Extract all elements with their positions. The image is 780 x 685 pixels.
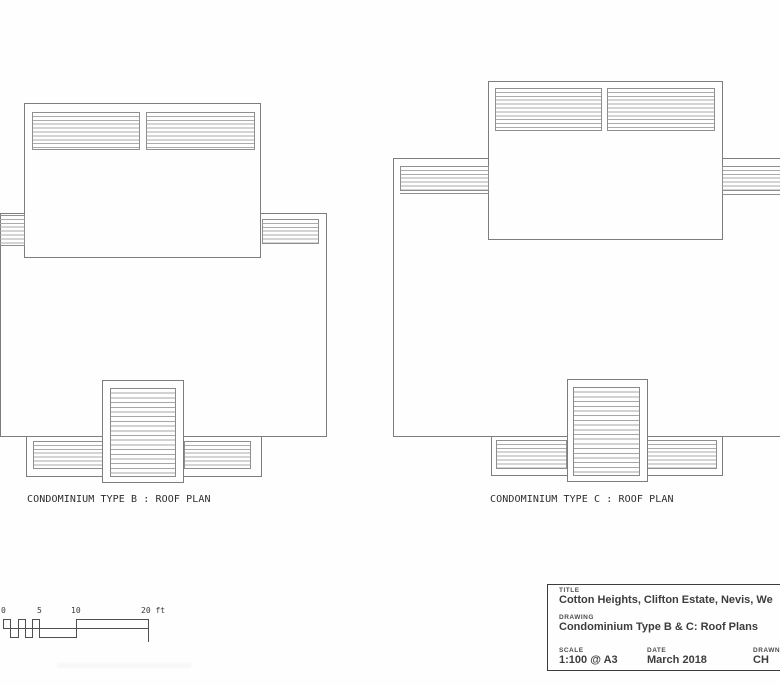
scale-tick-0: 0 — [1, 606, 6, 616]
type-c-skylight-left — [495, 88, 602, 131]
type-c-skylight-right — [607, 88, 715, 131]
scale-segment — [10, 628, 19, 638]
type-b-wing-louvre-right — [262, 219, 319, 244]
type-b-band-louvre-left — [33, 441, 103, 469]
type-b-stair-tower-louvre — [110, 388, 176, 477]
type-c-band-louvre-left — [496, 440, 567, 469]
scale-tick-20: 20 ft — [141, 606, 165, 616]
scale-segment — [25, 628, 33, 638]
scale-segment — [39, 628, 77, 638]
type-b-wing-louvre-left — [0, 215, 25, 246]
drawing-sheet: CONDOMINIUM TYPE B : ROOF PLAN CONDOMINI… — [0, 0, 780, 685]
type-b-band-louvre-right — [184, 441, 251, 469]
type-c-wing-louvre-right — [722, 166, 780, 191]
type-c-stair-tower-louvre — [573, 387, 640, 476]
type-b-skylight-right — [146, 112, 255, 150]
type-c-wing-louvre-left — [400, 166, 489, 191]
title-block-drawing-value: Condominium Type B & C: Roof Plans — [559, 621, 758, 634]
plan-type-c-caption: CONDOMINIUM TYPE C : ROOF PLAN — [490, 493, 674, 506]
title-block-drawn-value: CH — [753, 654, 769, 667]
scale-tick-10: 10 — [71, 606, 81, 616]
title-block-scale-value: 1:100 @ A3 — [559, 654, 618, 667]
scale-tick-5: 5 — [37, 606, 42, 616]
type-c-wing-sill-right — [722, 194, 780, 195]
scale-segment — [76, 619, 149, 629]
title-block-title-value: Cotton Heights, Clifton Estate, Nevis, W… — [559, 594, 773, 607]
scale-end-tick — [148, 619, 149, 642]
type-b-skylight-left — [32, 112, 140, 150]
plan-type-b-caption: CONDOMINIUM TYPE B : ROOF PLAN — [27, 493, 211, 506]
title-block-date-value: March 2018 — [647, 654, 707, 667]
scan-smudge — [57, 663, 192, 668]
type-c-wing-sill-left — [400, 193, 489, 194]
type-c-band-louvre-right — [647, 440, 717, 469]
